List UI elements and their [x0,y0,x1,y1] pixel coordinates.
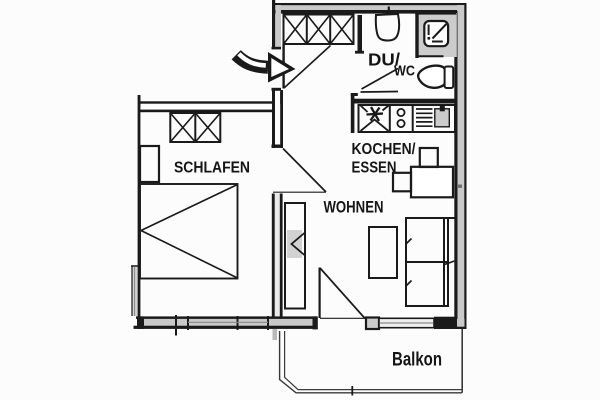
svg-text:WC: WC [394,63,415,80]
svg-text:KOCHEN/: KOCHEN/ [352,141,417,158]
svg-text:SCHLAFEN: SCHLAFEN [174,160,250,177]
svg-text:ESSEN: ESSEN [352,159,397,176]
svg-text:Balkon: Balkon [392,350,442,371]
svg-text:WOHNEN: WOHNEN [324,198,384,217]
